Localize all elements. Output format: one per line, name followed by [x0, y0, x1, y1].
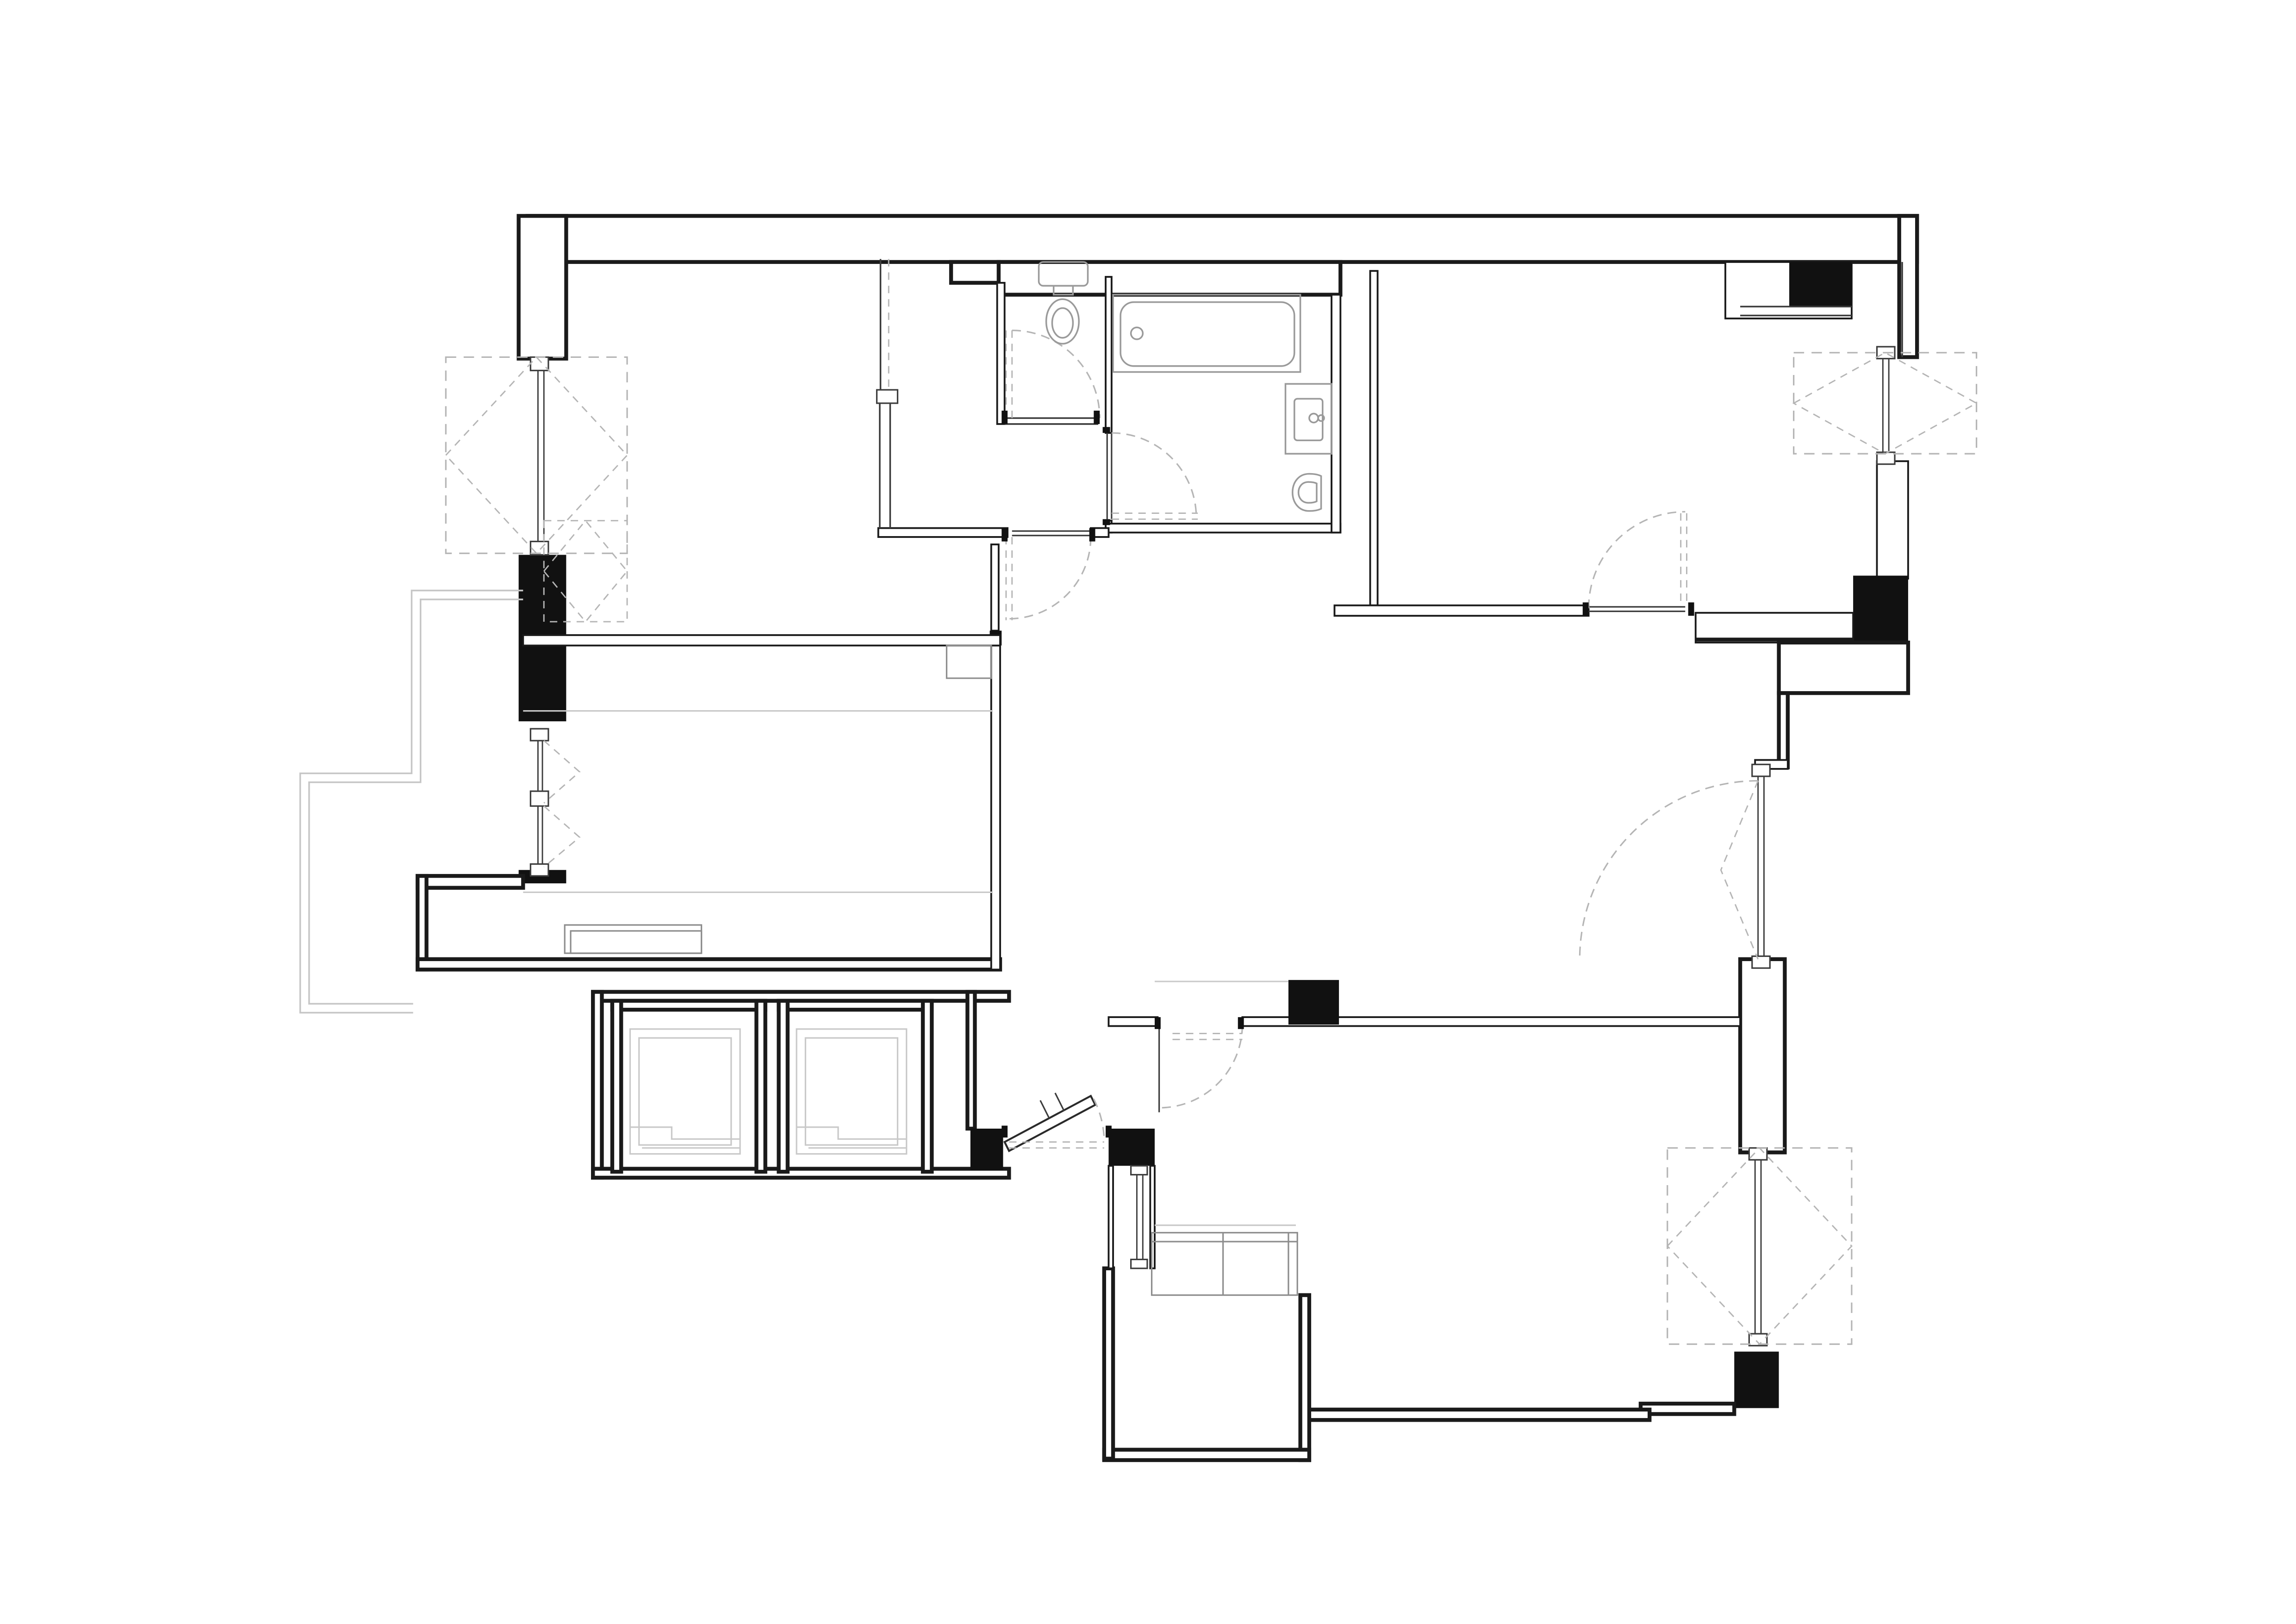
casement-window-right-bottom: [1668, 1148, 1852, 1346]
shaft2-top: [779, 1001, 932, 1010]
right-jog-wall: [1779, 643, 1908, 693]
bottom-wall-right: [1641, 1404, 1734, 1414]
core-left-wall: [593, 992, 602, 1178]
casement-symbol-box: [1794, 353, 1977, 454]
bidet-icon: [1293, 474, 1321, 511]
cabinet-icon: [565, 925, 701, 953]
bedroom-right-door: [1583, 512, 1694, 616]
shaft1-top: [612, 1001, 765, 1010]
balcony-outline-icon: [300, 591, 523, 1013]
vestibule-wall: [967, 992, 975, 1129]
shaft2-right: [923, 1001, 932, 1172]
casement-symbol-diamond: [1794, 353, 1977, 454]
wc-bath-divider-upper: [1106, 277, 1112, 433]
french-window-left: [530, 729, 579, 876]
bathroom-bottom-wall: [1106, 524, 1340, 532]
wc-left-wall: [997, 283, 1005, 424]
entry-right-pier: [1108, 1129, 1155, 1166]
wc-door: [1002, 331, 1100, 424]
flue-niche: [946, 645, 991, 678]
casement-symbol-box: [446, 357, 627, 553]
casement-v-symbol: [1721, 781, 1758, 959]
exterior-walls: [417, 216, 1917, 1460]
living-top-wall: [523, 635, 1000, 645]
elevator-car-icon: [796, 1029, 907, 1154]
elevator-core: [593, 992, 1009, 1178]
interior-walls: [523, 259, 1740, 1268]
washbasin-icon: [1286, 384, 1332, 454]
glazed-door-right: [1580, 764, 1770, 968]
core-bottom-wall: [593, 1169, 1009, 1178]
hall-top-wall: [878, 528, 1008, 537]
kitchen-top-wall-left: [1108, 1017, 1157, 1026]
living-right-wall: [991, 645, 1000, 969]
bathroom-door: [1103, 427, 1198, 525]
left-lower-wall: [417, 876, 426, 969]
glazing-stop: [1131, 1166, 1147, 1174]
glazed-door-swing-arc: [1580, 781, 1758, 959]
casement-v-symbol: [544, 806, 579, 867]
shaft1-left: [612, 1001, 621, 1172]
bay-left-wall: [1104, 1268, 1113, 1459]
bottom-wall-mid: [1303, 1410, 1649, 1420]
right-wall-upper: [1877, 461, 1908, 579]
top-right-recess-pier: [1789, 262, 1852, 306]
casement-window-right-top: [1794, 347, 1977, 464]
wardrobe-end-block: [877, 390, 897, 403]
casement-symbol-diamond: [446, 357, 627, 553]
bay-right-wall: [1300, 1295, 1309, 1460]
floor-plan-canvas: [0, 0, 2296, 1624]
bathroom-right-wall: [1332, 295, 1340, 533]
windows: [446, 347, 1976, 1346]
casement-symbol-box: [1668, 1148, 1852, 1344]
counter-icon: [1152, 1225, 1298, 1295]
entry-door-icon: [1002, 1093, 1112, 1151]
glazing-stop: [1131, 1260, 1147, 1268]
bathroom-top-wall: [999, 262, 1341, 295]
casement-v-symbol: [544, 741, 579, 803]
top-left-corner-pier: [519, 216, 566, 358]
kitchen-wall-pier: [1288, 980, 1339, 1024]
fixtures: [1039, 262, 1332, 511]
bathtub-icon: [1113, 295, 1300, 372]
left-step-wall: [417, 876, 523, 888]
living-bottom-wall: [417, 959, 1000, 969]
right-wall-mid: [1779, 693, 1788, 768]
top-exterior-wall: [528, 216, 1917, 262]
bedroom-right-bottom-wall: [1334, 606, 1588, 616]
casement-symbol-diamond: [1668, 1148, 1852, 1344]
right-bottom-pier: [1734, 1352, 1779, 1408]
bedroom-right-left-wall: [1370, 271, 1378, 605]
top-wall-step: [951, 262, 999, 283]
shaft2-left: [779, 1001, 788, 1172]
hall-bedroom-door: [1002, 528, 1095, 620]
doors: [1002, 331, 1694, 1151]
shaft1-right: [756, 1001, 765, 1172]
right-wall-strip: [1740, 959, 1785, 1152]
hall-left-wall: [991, 544, 999, 631]
entry-strip-face: [1108, 1166, 1113, 1268]
entry-left-pier: [971, 1129, 1003, 1170]
elevator-car-icon: [630, 1029, 740, 1154]
bay-bottom-wall: [1104, 1450, 1309, 1460]
right-wall-pier: [1853, 575, 1908, 642]
kitchen-door: [1155, 1017, 1244, 1112]
